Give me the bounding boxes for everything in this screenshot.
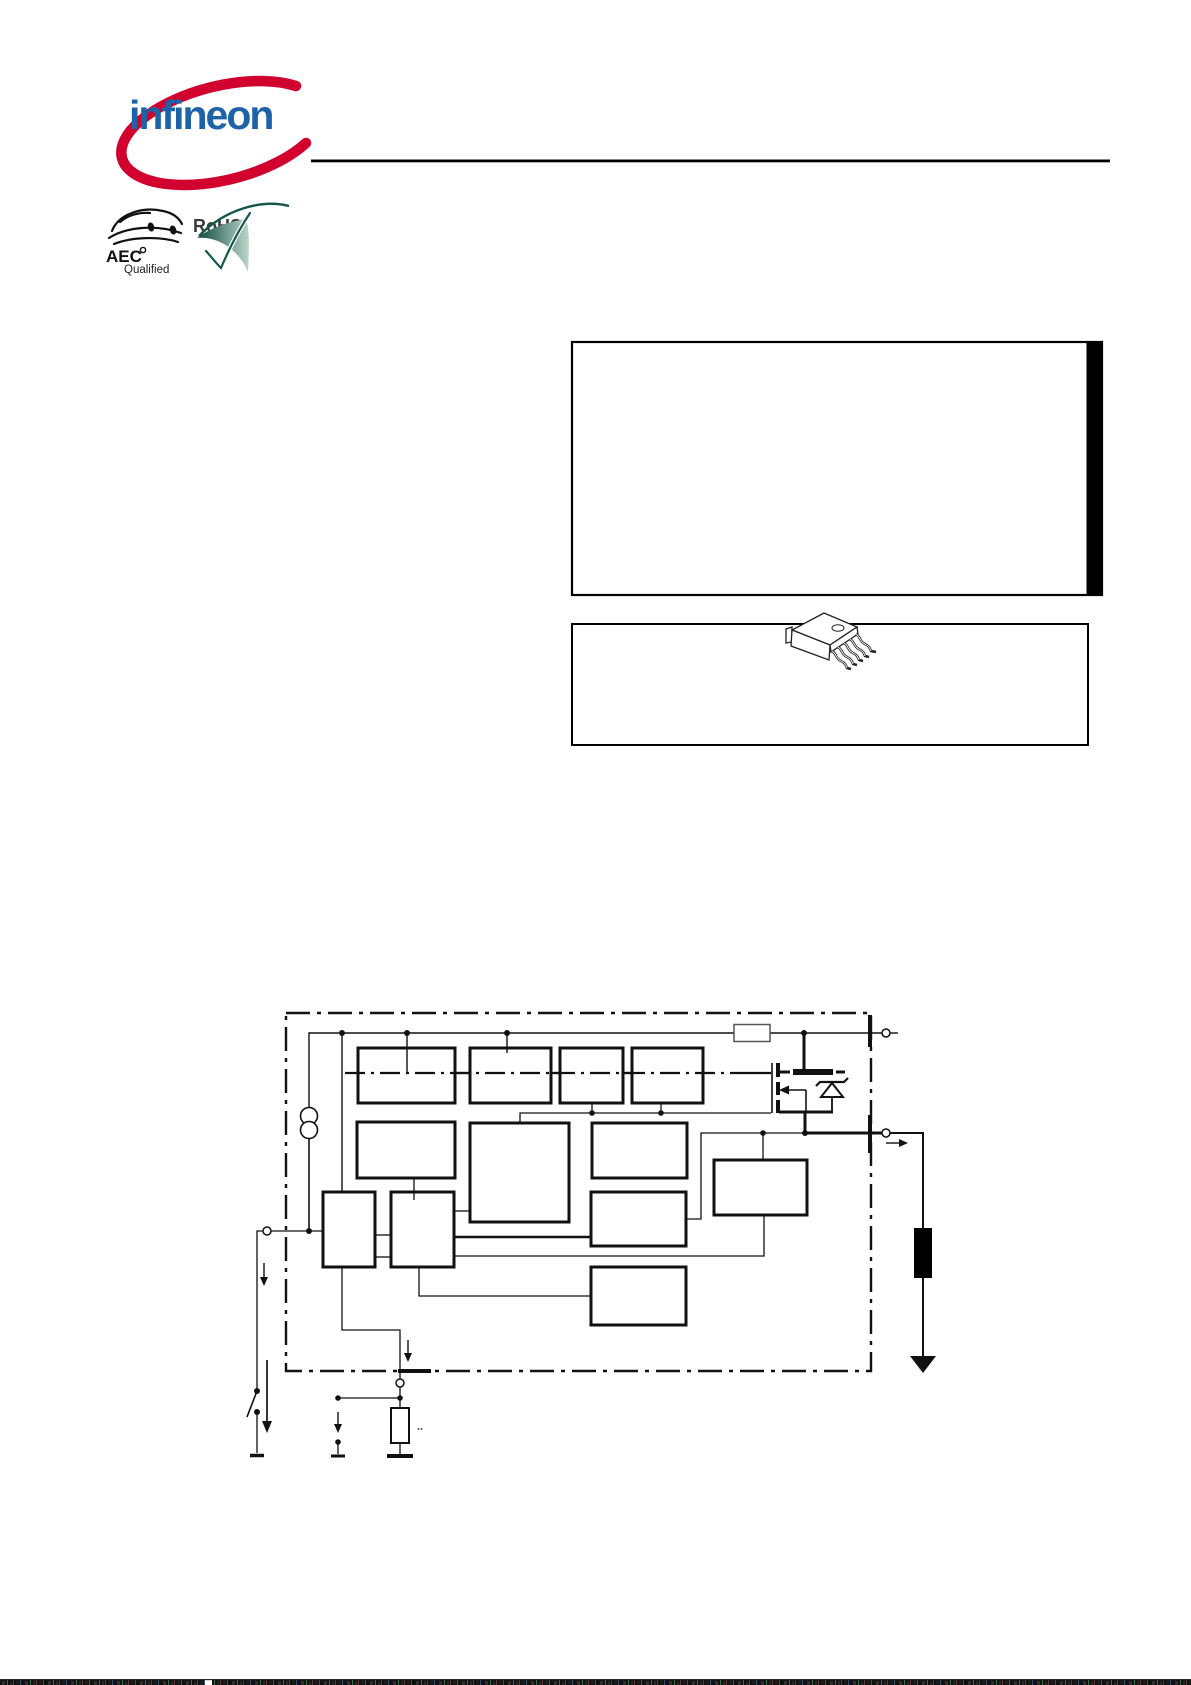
rail-feeders	[342, 1033, 507, 1192]
input-left-terminal-icon	[263, 1227, 271, 1235]
junction-dot	[306, 1228, 312, 1234]
aec-car-dot-right	[169, 225, 177, 235]
feature-panel-side-bar	[1087, 343, 1102, 594]
switch-icon	[247, 1388, 264, 1456]
gate-pull-line	[520, 1103, 771, 1123]
load-resistor-icon	[914, 1228, 932, 1278]
row2-blocks	[357, 1122, 687, 1222]
infineon-logo: infineon	[121, 81, 306, 185]
rohs-badge: RoHS	[193, 204, 289, 272]
block-diagram	[247, 1013, 936, 1456]
text-remnant-dot	[421, 1428, 423, 1430]
output-current-arrow-icon	[886, 1139, 908, 1147]
page-graphics: infineon AEC Qualified RoHS	[0, 0, 1191, 1685]
block-row3-1	[323, 1192, 375, 1267]
gnd-mid-branch	[331, 1412, 345, 1456]
block-row2-2	[470, 1123, 569, 1222]
block-wires	[375, 1211, 764, 1296]
pulldown-resistor-icon	[391, 1408, 409, 1443]
feature-panel	[572, 342, 1102, 595]
package-panel	[572, 613, 1088, 745]
row3-blocks	[323, 1160, 807, 1325]
series-resistor-icon	[734, 1025, 770, 1042]
ground-arrow-icon	[910, 1356, 936, 1373]
bulk-arrow	[779, 1086, 789, 1095]
block-row1-3	[560, 1048, 623, 1103]
junction-dot	[589, 1110, 595, 1116]
drain-node-bar	[793, 1069, 833, 1075]
feature-panel-frame	[572, 342, 1102, 595]
block-row1-4	[632, 1048, 703, 1103]
output-terminal-icon	[882, 1129, 890, 1137]
block-row2-3	[592, 1123, 687, 1178]
block-row4-1	[591, 1267, 686, 1325]
current-source-icon	[301, 1108, 318, 1232]
row1-blocks	[358, 1048, 703, 1103]
infineon-logo-text: infineon	[129, 92, 272, 138]
block-row2-1	[357, 1122, 455, 1178]
junction-dot	[335, 1395, 341, 1401]
block-monitor	[714, 1160, 807, 1215]
aec-sublabel: Qualified	[124, 264, 169, 276]
header-rule	[311, 160, 1110, 163]
input-terminal-icon	[882, 1029, 890, 1037]
package-dimple	[832, 625, 844, 631]
junction-dot	[658, 1110, 664, 1116]
zener-diode-icon	[816, 1078, 848, 1112]
current-arrow-icon	[404, 1340, 412, 1362]
bottom-artifact-strip	[0, 1679, 1191, 1685]
block-row3-3	[591, 1192, 686, 1246]
text-remnant-dot	[418, 1428, 420, 1430]
load-branch	[890, 1133, 936, 1373]
aec-car-dot-left	[147, 222, 155, 232]
datasheet-page: infineon AEC Qualified RoHS	[0, 0, 1191, 1685]
current-arrow-icon	[260, 1263, 268, 1286]
junction-dot	[397, 1395, 403, 1401]
block-row1-2	[470, 1048, 551, 1103]
block-row3-2	[391, 1192, 454, 1267]
d2pak-package-icon	[786, 613, 876, 669]
current-arrow-long-icon	[262, 1360, 272, 1433]
aec-qualified-badge: AEC Qualified	[106, 210, 182, 276]
ground-terminal-icon	[396, 1379, 404, 1387]
